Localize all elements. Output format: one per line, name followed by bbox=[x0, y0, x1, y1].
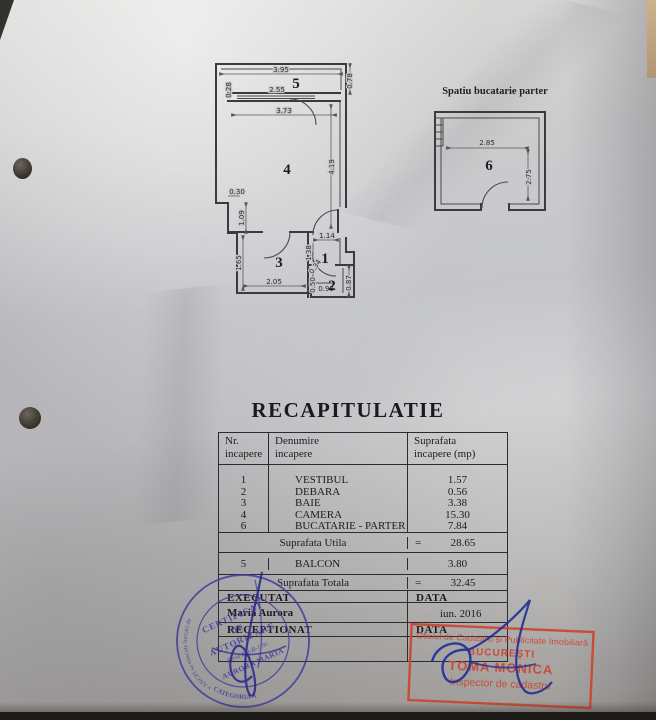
photo-edge-bottom bbox=[0, 712, 656, 720]
scanned-cadastral-document: 3.95 0.78 0.28 2.55 3.73 4.19 0.30 1.09 … bbox=[0, 0, 656, 720]
stamp-line: Oficiul de Cadastru şi Publicitate Imobi… bbox=[416, 630, 589, 648]
round-certification-stamp: Persoana fizica autorizata de ANCPI sa e… bbox=[0, 24, 330, 720]
paper-bottom-shadow bbox=[0, 702, 656, 712]
red-office-stamp: Oficiul de Cadastru şi Publicitate Imobi… bbox=[408, 624, 593, 708]
stamps-layer: Persoana fizica autorizata de ANCPI sa e… bbox=[0, 0, 656, 720]
stamp-ring-text: Persoana fizica autorizata de ANCPI sa e… bbox=[0, 66, 222, 720]
stamp-line: Inspector de cadastru bbox=[449, 676, 551, 692]
